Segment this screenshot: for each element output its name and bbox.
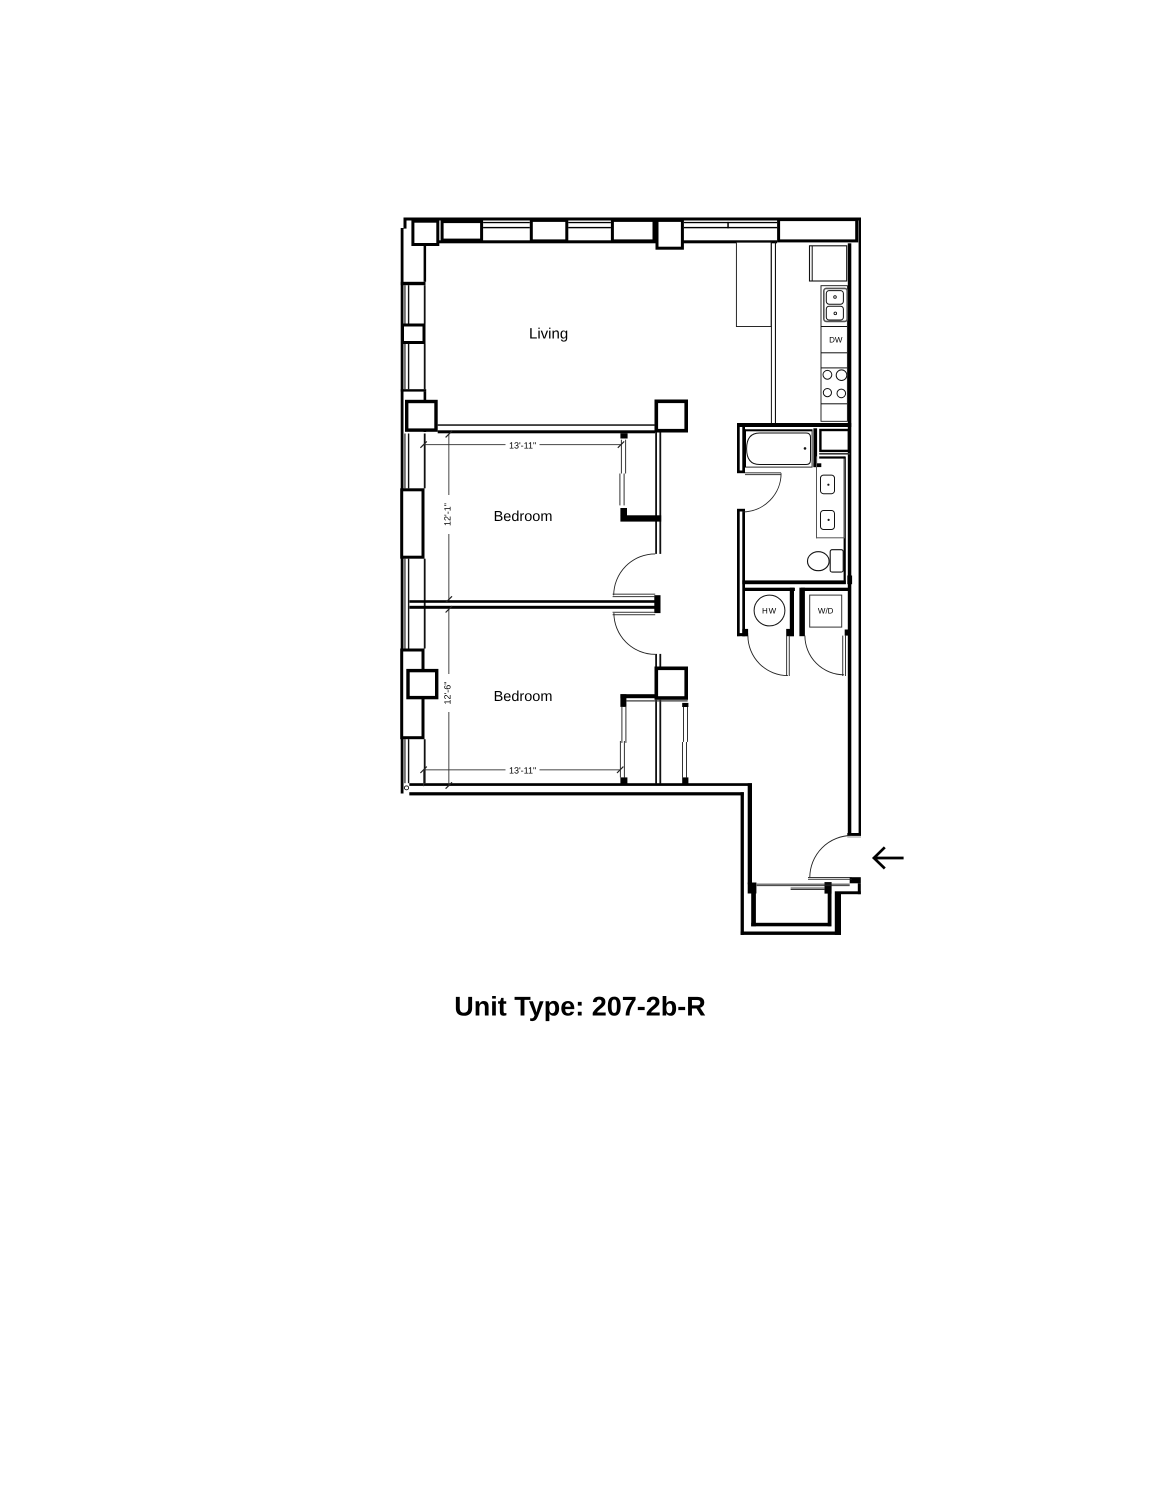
svg-text:12'-6": 12'-6" <box>443 682 453 705</box>
svg-text:DW: DW <box>829 336 843 345</box>
svg-text:Bedroom: Bedroom <box>494 509 553 525</box>
svg-text:13'-11": 13'-11" <box>509 766 536 776</box>
svg-text:Unit Type: 207-2b-R: Unit Type: 207-2b-R <box>454 992 706 1022</box>
svg-text:HW: HW <box>762 607 777 616</box>
svg-text:Living: Living <box>529 325 568 342</box>
svg-text:12'-1": 12'-1" <box>443 503 453 526</box>
svg-text:13'-11": 13'-11" <box>509 440 536 450</box>
svg-text:Bedroom: Bedroom <box>494 689 553 705</box>
svg-text:W/D: W/D <box>818 607 834 616</box>
